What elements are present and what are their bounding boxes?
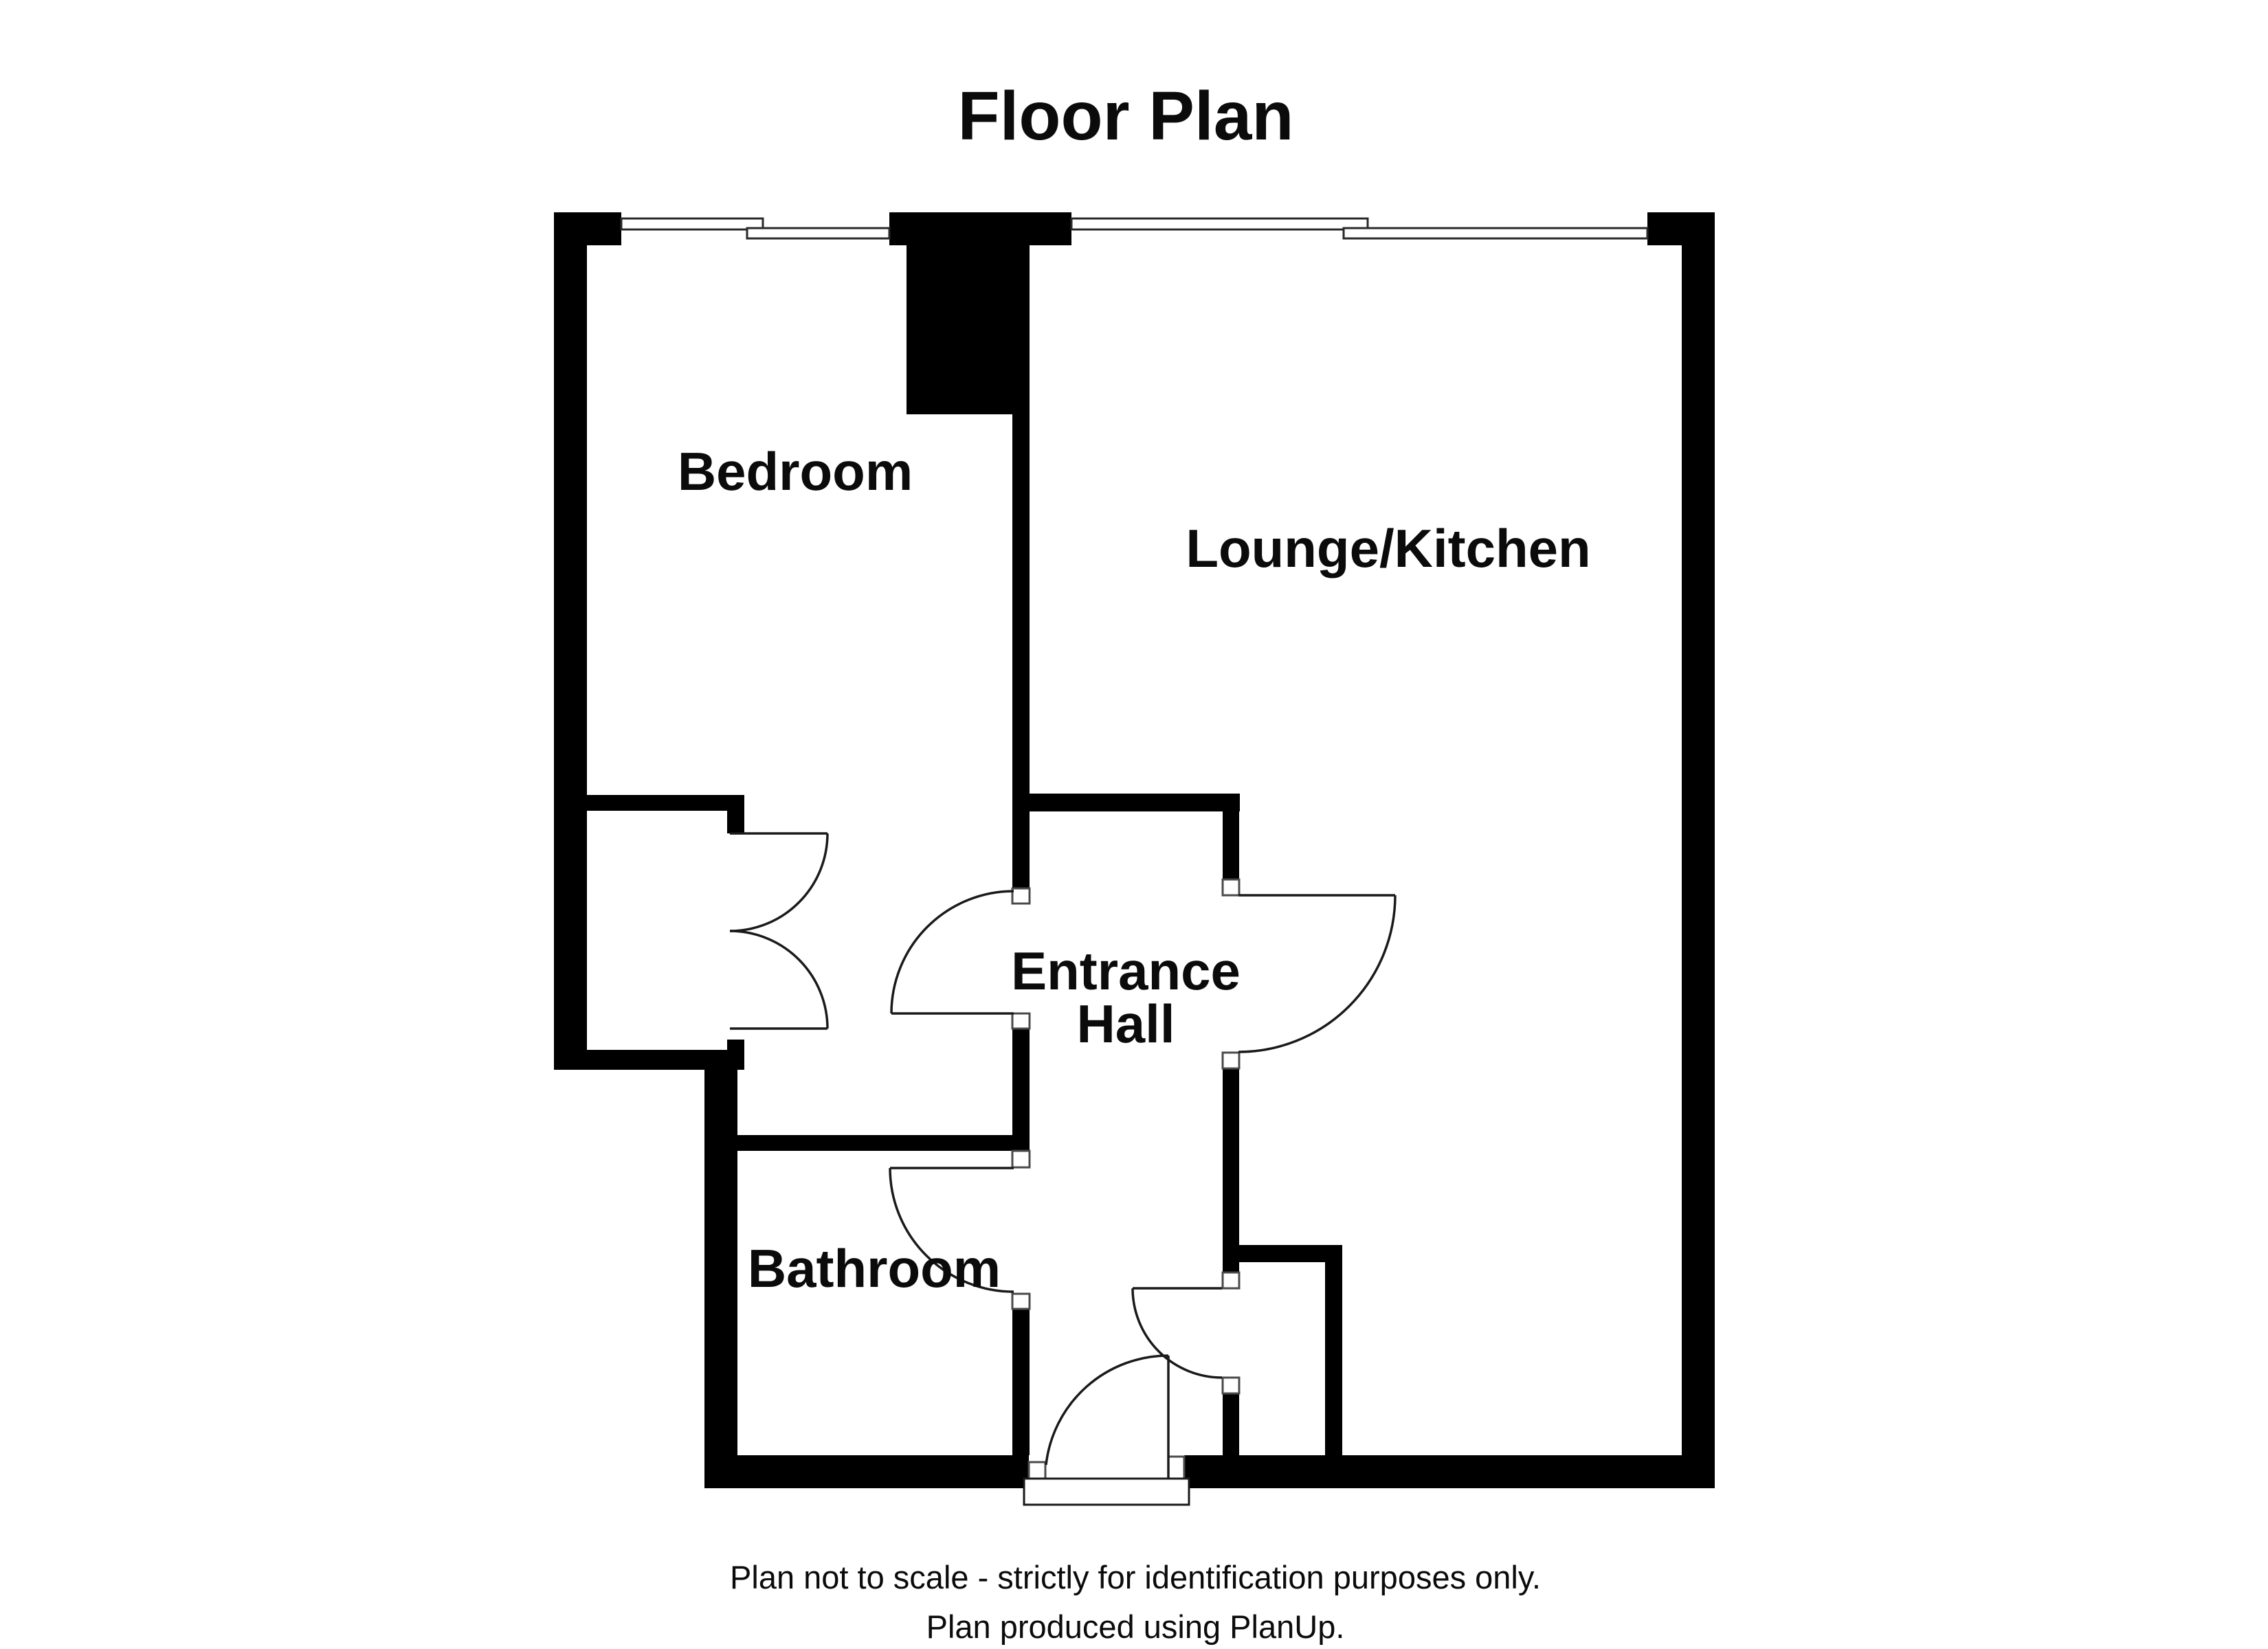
wall-closet-top-stub — [727, 811, 744, 833]
lounge-door-jamb-bottom — [1223, 1053, 1239, 1068]
wall-bottom-outer-right — [1184, 1455, 1715, 1488]
closet-door-top — [730, 833, 827, 931]
cupboard-door-jamb-top — [1223, 1272, 1239, 1288]
room-labels-layer: BedroomLounge/KitchenEntranceHallBathroo… — [678, 441, 1591, 1299]
closet-door-bottom — [730, 931, 827, 1029]
windows-layer — [621, 218, 1647, 238]
wall-hall-right-upper — [1223, 811, 1239, 879]
wall-cupboard-right — [1325, 1262, 1342, 1455]
entrance-door — [1046, 1356, 1168, 1479]
threshold-layer — [1024, 1479, 1189, 1505]
room-label-lounge-kitchen: Lounge/Kitchen — [1186, 518, 1590, 579]
entrance-threshold — [1024, 1479, 1189, 1505]
closet-door-bottom-swing-arc — [730, 931, 827, 1029]
entrance-door-swing-arc — [1046, 1356, 1168, 1465]
wall-closet-top — [587, 795, 744, 811]
cupboard-door — [1133, 1288, 1222, 1378]
bathroom-door-jamb-bottom — [1012, 1294, 1030, 1309]
lounge-door-jamb-top — [1223, 879, 1239, 895]
wall-bathroom-top — [737, 1135, 1014, 1151]
wall-closet-bottom-stub — [727, 1040, 744, 1070]
hall-lounge-door-swing-arc — [1238, 895, 1395, 1052]
bathroom-door-jamb-top — [1012, 1151, 1030, 1167]
entrance-door-jamb-left — [1029, 1462, 1045, 1480]
wall-hall-top — [1030, 794, 1240, 811]
floorplan-svg: Floor Plan BedroomLounge/KitchenEntrance… — [0, 0, 2268, 1649]
footer-credit: Plan produced using PlanUp. — [926, 1608, 1345, 1645]
floorplan-page: Floor Plan BedroomLounge/KitchenEntrance… — [0, 0, 2268, 1649]
hall-bedroom-door-jamb-top — [1012, 888, 1030, 904]
closet-door-top-swing-arc — [730, 833, 827, 931]
wall-divider-upper — [1012, 414, 1030, 888]
entrance-door-jamb-right — [1168, 1457, 1184, 1479]
wall-chimney-breast — [907, 245, 1030, 414]
wall-divider-lower — [1012, 1309, 1030, 1455]
bedroom-window-lower — [747, 228, 889, 238]
lounge-window-upper — [1071, 218, 1368, 229]
wall-hall-right-lower — [1223, 1393, 1239, 1455]
wall-top-left-corner — [554, 212, 621, 245]
cupboard-door-swing-arc — [1133, 1288, 1222, 1378]
hall-bedroom-door — [891, 891, 1014, 1013]
hall-bedroom-door-swing-arc — [891, 891, 1014, 1013]
hall-lounge-door — [1238, 895, 1395, 1052]
wall-cupboard-top — [1239, 1245, 1342, 1262]
room-label-entrance-hall: EntranceHall — [1011, 941, 1241, 1054]
hall-bedroom-door-jamb-bottom — [1012, 1013, 1030, 1029]
wall-hall-right-mid — [1223, 1068, 1239, 1272]
wall-right-outer — [1682, 212, 1715, 1488]
page-title: Floor Plan — [958, 78, 1294, 155]
bedroom-window-upper — [621, 218, 763, 229]
cupboard-door-jamb-bottom — [1223, 1378, 1239, 1393]
walls-layer — [554, 212, 1715, 1488]
lounge-window-lower — [1344, 228, 1647, 238]
footer-disclaimer: Plan not to scale - strictly for identif… — [730, 1559, 1541, 1595]
room-label-bathroom: Bathroom — [748, 1238, 1001, 1299]
wall-left-outer — [554, 212, 587, 1070]
wall-divider-mid — [1012, 1029, 1030, 1151]
wall-chimney-top — [889, 212, 1071, 245]
wall-bottom-outer-left — [704, 1455, 1029, 1488]
doors-layer — [730, 833, 1395, 1479]
wall-bathroom-left-outer — [704, 1050, 737, 1488]
room-label-bedroom: Bedroom — [678, 441, 913, 502]
